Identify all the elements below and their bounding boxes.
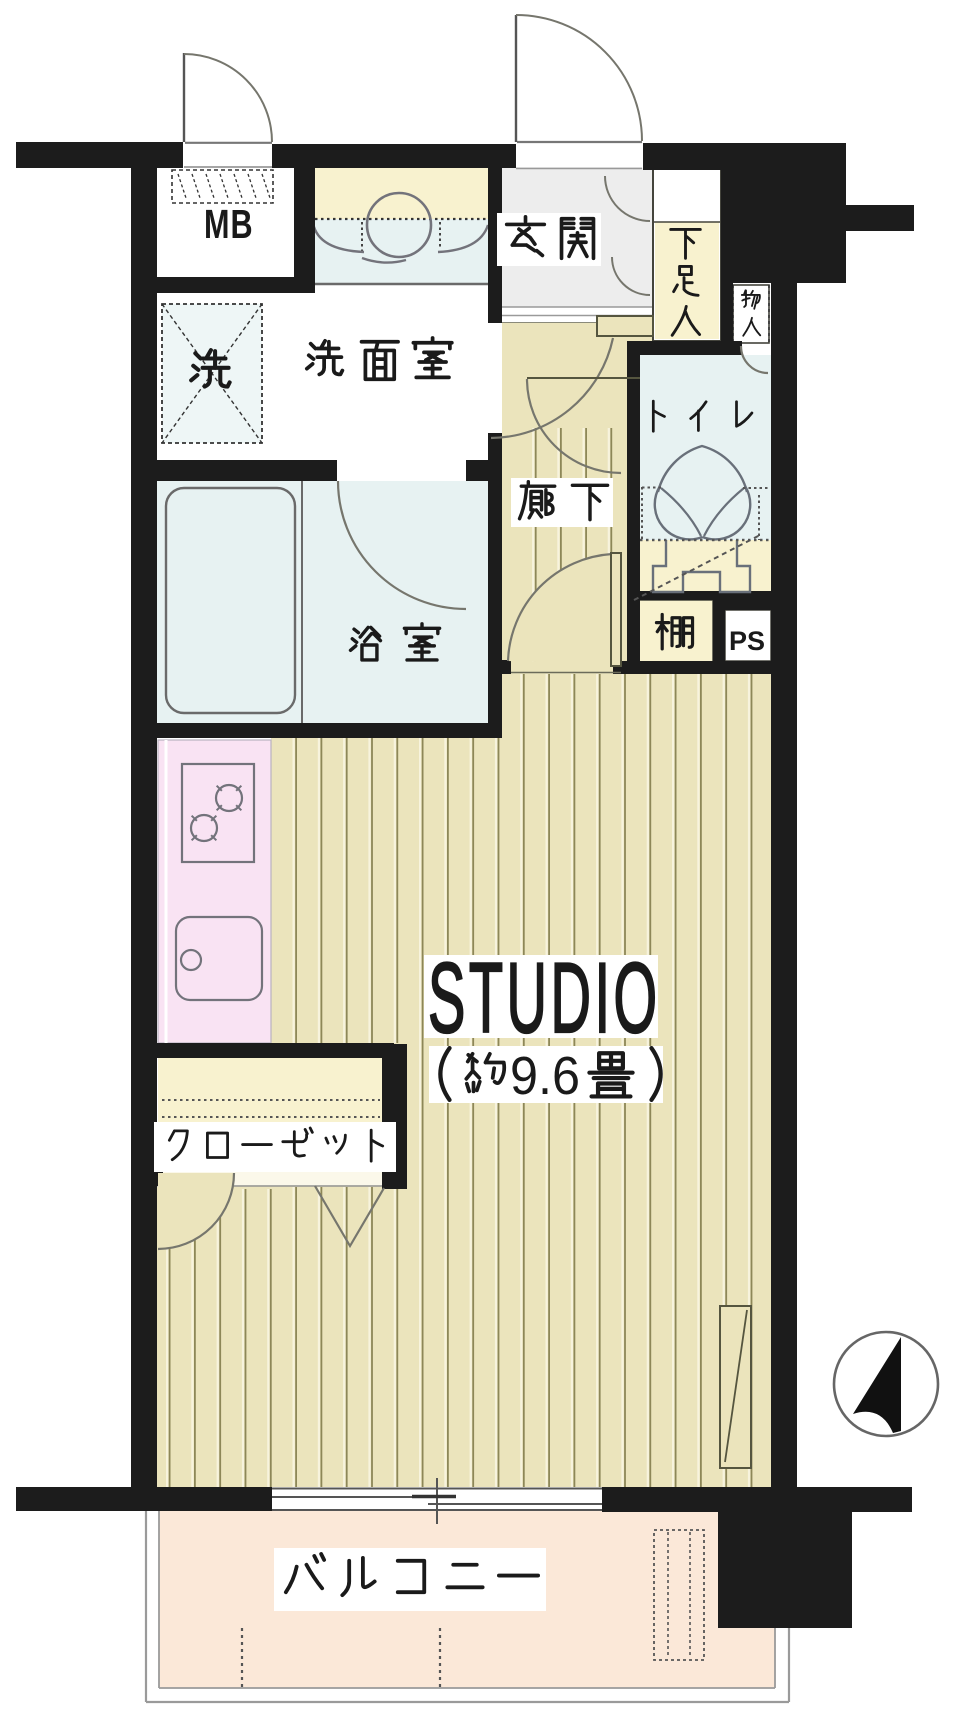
svg-text:9.6: 9.6: [510, 1047, 580, 1107]
svg-text:MB: MB: [204, 202, 254, 247]
svg-text:STUDIO: STUDIO: [428, 943, 661, 1054]
svg-text:PS: PS: [729, 626, 765, 656]
